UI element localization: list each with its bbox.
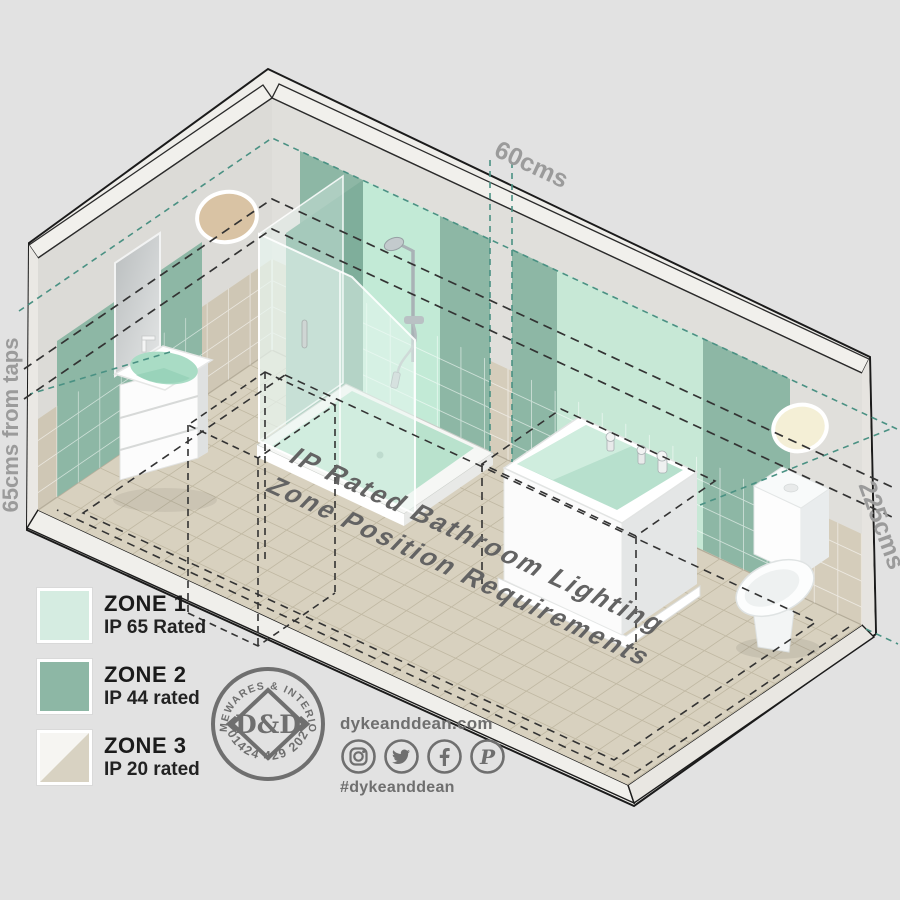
svg-text:P: P bbox=[479, 745, 496, 769]
legend-item-zone3: ZONE 3 IP 20 rated bbox=[37, 730, 206, 785]
zone3-label: ZONE 3 bbox=[104, 733, 200, 759]
legend-item-zone2: ZONE 2 IP 44 rated bbox=[37, 659, 206, 714]
website-link[interactable]: dykeanddean.com bbox=[340, 714, 506, 734]
hashtag-text: #dykeanddean bbox=[340, 779, 506, 797]
stamp-monogram: D&D bbox=[235, 710, 301, 739]
zone2-label: ZONE 2 bbox=[104, 662, 200, 688]
dimension-left: 65cms from taps bbox=[0, 338, 23, 513]
zone3-swatch bbox=[37, 730, 92, 785]
zone-legend: ZONE 1 IP 65 Rated ZONE 2 IP 44 rated ZO… bbox=[37, 588, 206, 785]
brand-contact-block: dykeanddean.com P #dykeanddean bbox=[340, 714, 506, 797]
shower-door-handle bbox=[302, 320, 307, 348]
zone1-swatch bbox=[37, 588, 92, 643]
brand-stamp-logo: HOMEWARES & INTERIORS 01424 429 202 D&D bbox=[206, 662, 330, 786]
twitter-icon[interactable] bbox=[383, 738, 420, 775]
toilet-flush-button bbox=[784, 484, 798, 492]
zone2-swatch bbox=[37, 659, 92, 714]
zone1-rating: IP 65 Rated bbox=[104, 617, 206, 639]
facebook-icon[interactable] bbox=[426, 738, 463, 775]
instagram-icon[interactable] bbox=[340, 738, 377, 775]
shower-mixer bbox=[404, 316, 424, 324]
social-icons-row: P bbox=[340, 738, 506, 775]
zone1-label: ZONE 1 bbox=[104, 591, 206, 617]
zone2-rating: IP 44 rated bbox=[104, 688, 200, 710]
pinterest-icon[interactable]: P bbox=[469, 738, 506, 775]
zone3-rating: IP 20 rated bbox=[104, 759, 200, 781]
legend-item-zone1: ZONE 1 IP 65 Rated bbox=[37, 588, 206, 643]
